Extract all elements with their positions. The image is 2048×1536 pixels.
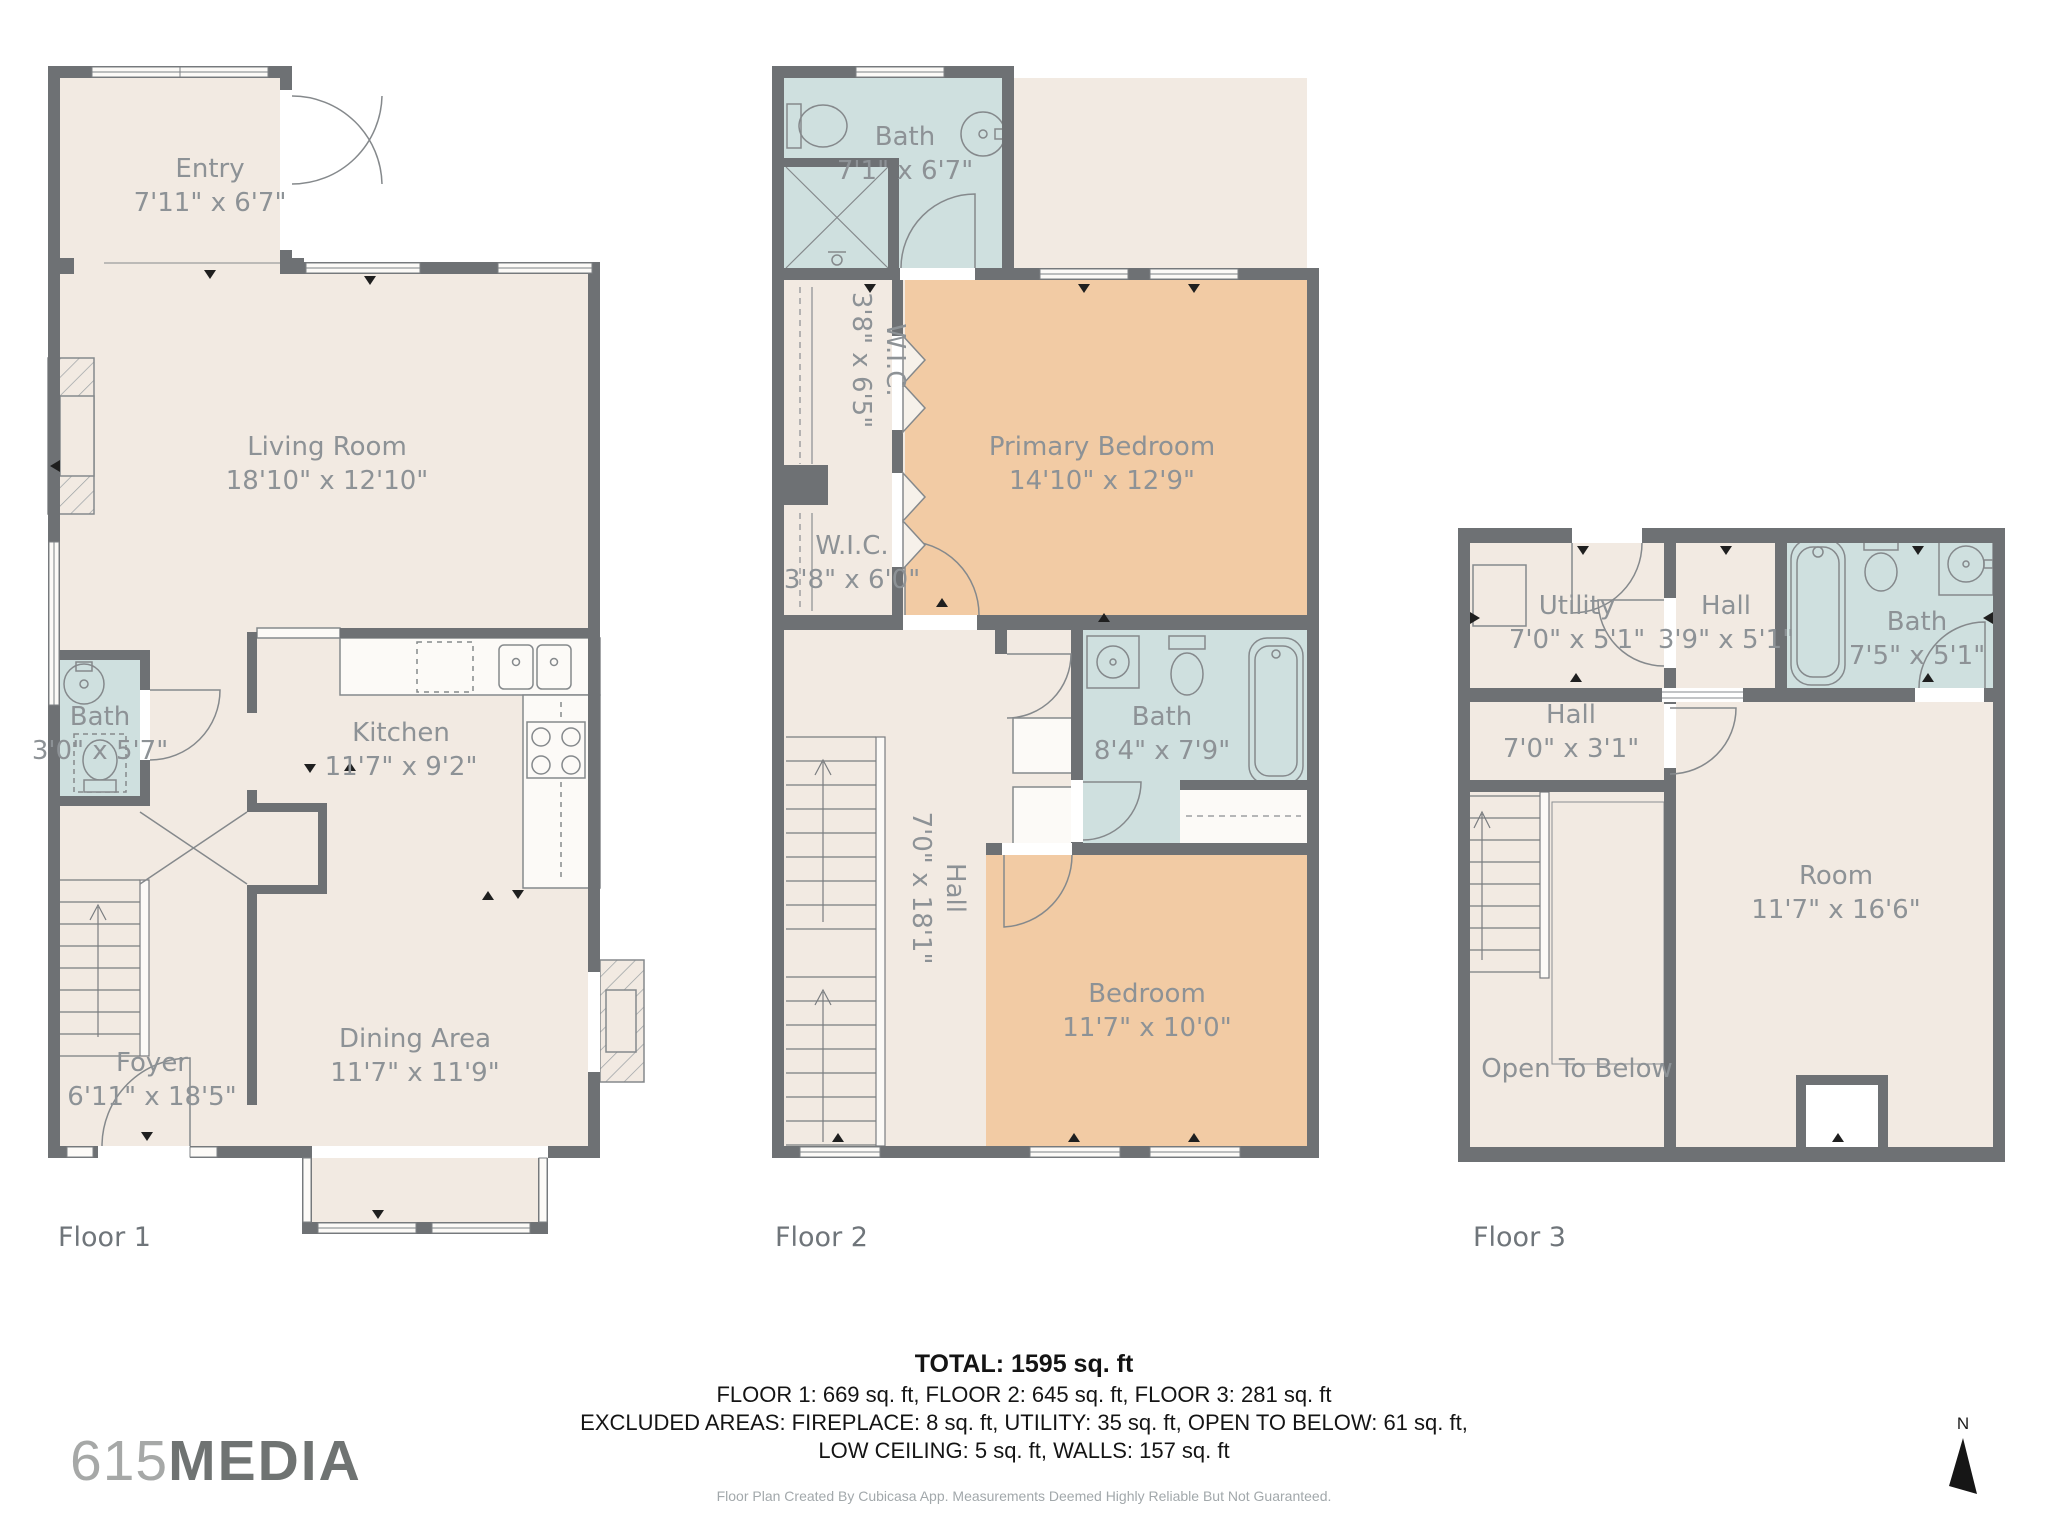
room-label-hall2: Hall7'0" x 18'1" bbox=[904, 812, 972, 965]
window bbox=[306, 263, 420, 273]
summary-total: TOTAL: 1595 sq. ft bbox=[0, 1350, 2048, 1379]
room-label-hall3b: Hall7'0" x 3'1" bbox=[1503, 698, 1639, 766]
north-label: N bbox=[1938, 1414, 1988, 1434]
615media-logo: 615MEDIA bbox=[70, 1428, 362, 1494]
north-arrow-icon bbox=[1941, 1434, 1985, 1498]
window bbox=[432, 1223, 530, 1233]
window bbox=[1150, 269, 1238, 279]
window bbox=[1030, 1147, 1120, 1157]
room-label-foyer: Foyer6'11" x 18'5" bbox=[67, 1046, 236, 1114]
room-label-room3: Room11'7" x 16'6" bbox=[1751, 859, 1920, 927]
window bbox=[800, 1147, 880, 1157]
room-label-entry: Entry7'11" x 6'7" bbox=[134, 152, 287, 220]
room-label-hall3a: Hall3'9" x 5'1" bbox=[1658, 589, 1794, 657]
room-label-utility: Utility7'0" x 5'1" bbox=[1509, 589, 1645, 657]
window bbox=[856, 67, 944, 77]
room-label-primary-bedroom: Primary Bedroom14'10" x 12'9" bbox=[989, 430, 1215, 498]
window bbox=[49, 542, 59, 705]
floor3-caption: Floor 3 bbox=[1473, 1222, 1566, 1253]
stove-icon bbox=[527, 722, 585, 778]
window bbox=[1040, 269, 1128, 279]
floor1-caption: Floor 1 bbox=[58, 1222, 151, 1253]
room-label-dining: Dining Area11'7" x 11'9" bbox=[330, 1022, 499, 1090]
room-label-bath1: Bath3'0" x 5'7" bbox=[32, 700, 168, 768]
room-label-living: Living Room18'10" x 12'10" bbox=[226, 430, 428, 498]
room-label-wic2: W.I.C.3'8" x 6'0" bbox=[784, 529, 920, 597]
bath-sink-icon bbox=[1087, 636, 1139, 688]
room-label-bedroom2: Bedroom11'7" x 10'0" bbox=[1062, 977, 1231, 1045]
floor2-caption: Floor 2 bbox=[775, 1222, 868, 1253]
window bbox=[498, 263, 592, 273]
room-label-bath2: Bath7'1" x 6'7" bbox=[837, 120, 973, 188]
window bbox=[318, 1223, 416, 1233]
window bbox=[1150, 1147, 1240, 1157]
room-label-bath2b: Bath8'4" x 7'9" bbox=[1094, 700, 1230, 768]
room-label-bath3: Bath7'5" x 5'1" bbox=[1849, 605, 1985, 673]
floor2-plan bbox=[768, 62, 1328, 1167]
floor-plan-page: Entry7'11" x 6'7" Living Room18'10" x 12… bbox=[0, 0, 2048, 1536]
fireplace-icon bbox=[600, 960, 644, 1082]
double-door bbox=[292, 96, 382, 184]
north-compass: N bbox=[1938, 1414, 1988, 1502]
double-door bbox=[292, 96, 382, 184]
room-label-open-to-below: Open To Below bbox=[1481, 1052, 1673, 1086]
room-label-wic1: W.I.C.3'8" x 6'5" bbox=[844, 292, 912, 428]
room-label-kitchen: Kitchen11'7" x 9'2" bbox=[325, 716, 478, 784]
summary-floors: FLOOR 1: 669 sq. ft, FLOOR 2: 645 sq. ft… bbox=[0, 1382, 2048, 1408]
window bbox=[92, 67, 268, 77]
